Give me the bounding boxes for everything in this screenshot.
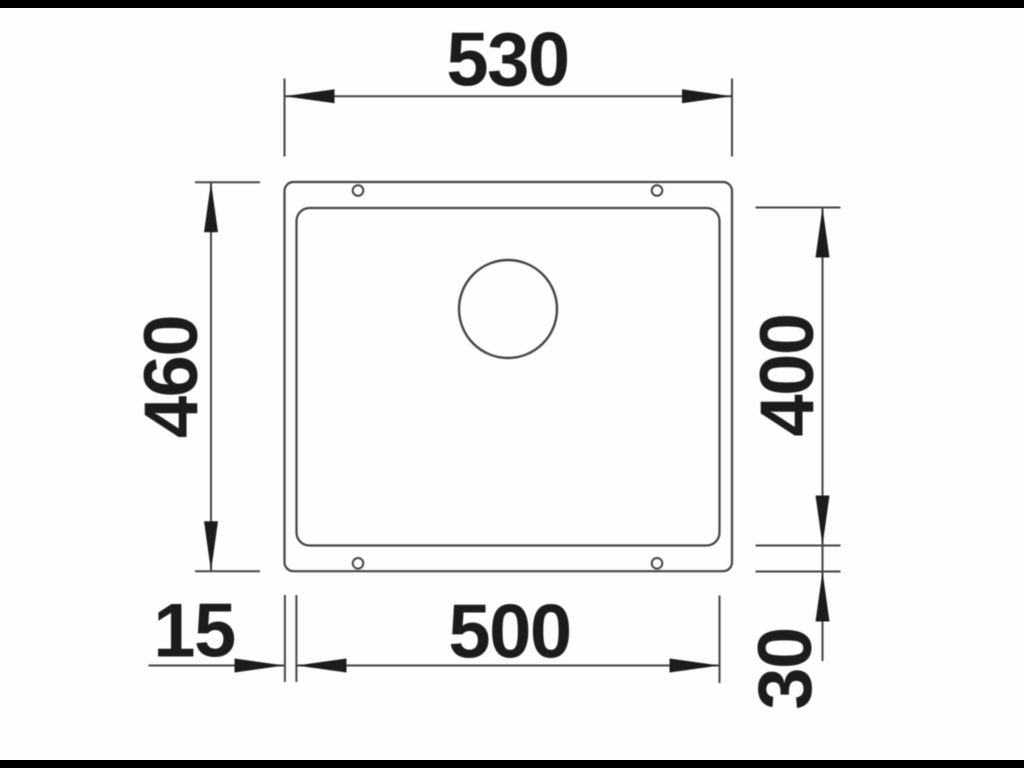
- svg-text:400: 400: [745, 314, 830, 436]
- svg-text:15: 15: [153, 589, 235, 674]
- svg-text:500: 500: [448, 590, 570, 675]
- svg-text:30: 30: [743, 628, 828, 710]
- svg-text:530: 530: [446, 18, 568, 103]
- svg-text:460: 460: [129, 316, 214, 438]
